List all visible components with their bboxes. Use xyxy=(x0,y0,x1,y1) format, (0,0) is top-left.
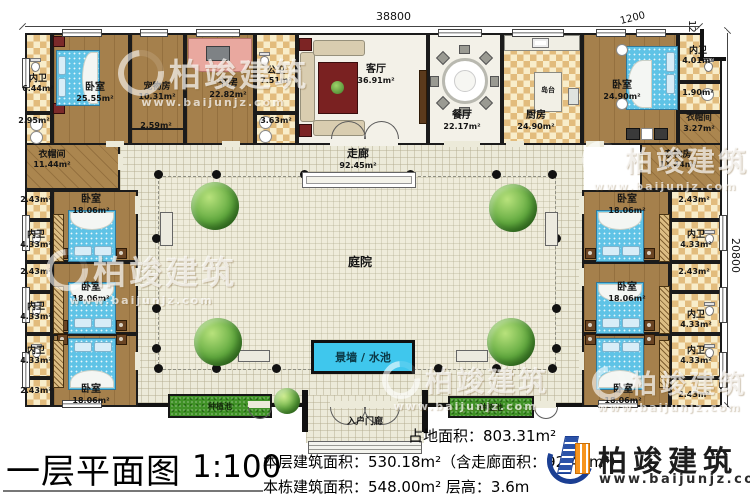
room-label: 内卫4.33m² xyxy=(676,346,716,366)
nightstand xyxy=(585,334,596,345)
dimension-line-right xyxy=(727,33,728,407)
window xyxy=(719,287,727,323)
side-table xyxy=(299,38,312,51)
room-label: 衣帽间11.44m² xyxy=(22,150,82,170)
window xyxy=(140,29,168,37)
nightstand xyxy=(585,248,596,259)
door-opening xyxy=(135,352,140,370)
tree xyxy=(191,182,239,230)
room-label: 2.43m² xyxy=(672,390,716,399)
room-label: 卧室18.06m² xyxy=(66,384,116,405)
room-label: 卧室18.06m² xyxy=(602,282,652,303)
brand-logo-icon xyxy=(546,428,598,492)
pillow xyxy=(74,318,92,328)
window xyxy=(196,29,240,37)
bench xyxy=(545,212,558,246)
room-label: 卧室25.55m² xyxy=(70,82,120,103)
armchair xyxy=(654,128,668,140)
toilet-icon xyxy=(259,52,270,66)
door-opening xyxy=(579,352,584,370)
window xyxy=(636,29,666,37)
stat-floor-height: 层高：3.6m xyxy=(446,478,529,496)
room-label: 书房22.82m² xyxy=(200,78,256,99)
pillow xyxy=(94,246,112,256)
room-label: 2.43m² xyxy=(672,195,716,204)
small-table xyxy=(641,128,653,140)
courtyard-column-dots xyxy=(0,0,9,9)
courtyard-planter xyxy=(302,172,416,188)
title-underline xyxy=(3,490,263,492)
pillow xyxy=(622,342,640,352)
door-opening xyxy=(506,141,524,147)
sink-icon xyxy=(30,131,43,144)
stat-building-area: 本栋建筑面积：548.00m² 层高：3.6m xyxy=(263,476,529,497)
room-label: 厨房24.90m² xyxy=(512,110,560,131)
room-label: 2.43m² xyxy=(14,386,58,395)
chair xyxy=(430,76,439,87)
pillow xyxy=(666,52,675,72)
side-table xyxy=(299,124,312,137)
bench xyxy=(160,212,173,246)
logo-building-orange xyxy=(575,443,590,474)
wardrobe xyxy=(659,340,670,388)
tree xyxy=(489,184,537,232)
toilet-icon xyxy=(30,58,41,72)
chair xyxy=(459,45,470,54)
room-label: 杂物房11.44m² xyxy=(648,150,708,170)
door-arc xyxy=(534,407,558,419)
pillow xyxy=(94,342,112,352)
window xyxy=(719,352,727,388)
tree xyxy=(194,318,242,366)
pillow xyxy=(602,318,620,328)
stat-land-area: 占地面积：803.31m² xyxy=(408,425,556,446)
bench xyxy=(238,350,270,362)
door-opening xyxy=(444,141,480,147)
door-opening xyxy=(118,154,123,170)
room-label: 卧室18.06m² xyxy=(66,194,116,215)
room-label: 内卫4.33m² xyxy=(16,346,56,366)
dimension-top-value: 38800 xyxy=(372,10,415,23)
dimension-corner-h: 1200 xyxy=(619,10,646,27)
pillow xyxy=(602,342,620,352)
room-label: 衣帽间3.27m² xyxy=(676,114,722,133)
room-label: 内卫4.33m² xyxy=(676,230,716,250)
plant xyxy=(331,81,344,94)
double-door-opening xyxy=(330,138,398,146)
window xyxy=(512,29,564,37)
brand-website: www.baijunjz.com xyxy=(599,472,750,487)
nightstand xyxy=(116,334,127,345)
nightstand xyxy=(644,334,655,345)
sofa xyxy=(313,40,365,56)
room-label: 公卫7.51m² xyxy=(254,66,298,86)
room-label: 内卫4.33m² xyxy=(16,230,56,250)
room-label: 卧室18.06m² xyxy=(602,194,652,215)
nightstand xyxy=(116,248,127,259)
nightstand xyxy=(644,320,655,331)
dimension-line-top xyxy=(25,26,700,27)
pillow xyxy=(74,342,92,352)
tree xyxy=(487,318,535,366)
door-opening xyxy=(135,268,140,286)
pillow xyxy=(602,246,620,256)
room-label: 3.63m² xyxy=(252,116,300,125)
room-label: 2.43m² xyxy=(14,195,58,204)
dining-table-center xyxy=(454,70,476,92)
corridor-label: 走廊92.45m² xyxy=(330,148,386,170)
bench xyxy=(456,350,488,362)
room-label: 2.95m² xyxy=(10,116,58,125)
room-label: 1.90m² xyxy=(676,88,720,97)
door-opening xyxy=(586,141,604,147)
window xyxy=(596,29,626,37)
pillow xyxy=(666,74,675,94)
room-label: 卧室24.90m² xyxy=(598,80,646,101)
window xyxy=(719,215,727,251)
kitchen-sink xyxy=(532,38,549,48)
monitor xyxy=(206,46,230,61)
water-feature: 景墙 / 水池 xyxy=(311,340,415,374)
plan-title: 一层平面图 xyxy=(6,444,181,493)
courtyard-label: 庭院 xyxy=(336,256,384,270)
room-label: 客厅36.91m² xyxy=(352,64,400,85)
wardrobe xyxy=(659,286,670,334)
pillow xyxy=(74,246,92,256)
door-opening xyxy=(579,196,584,214)
nightstand xyxy=(644,248,655,259)
window xyxy=(438,29,482,37)
room-label: 内卫6.44m² xyxy=(14,74,62,94)
room-label: 餐厅22.17m² xyxy=(438,110,486,131)
floorplan-canvas: 38800 1200 1200 20800 庭院 走廊92.45m² 景墙 / … xyxy=(0,0,750,504)
door-opening xyxy=(222,141,240,147)
tv-cabinet xyxy=(419,70,427,124)
lamp xyxy=(616,44,628,56)
shrub xyxy=(274,388,300,414)
door-opening xyxy=(638,154,643,170)
room-pet-annex xyxy=(130,128,185,145)
door-opening xyxy=(579,268,584,286)
room-label: 2.43m² xyxy=(14,267,58,276)
pillow xyxy=(622,318,640,328)
sofa xyxy=(300,52,315,122)
nightstand xyxy=(585,320,596,331)
pillow xyxy=(94,318,112,328)
armchair xyxy=(626,128,640,140)
room-label: 2.43m² xyxy=(672,267,716,276)
nightstand xyxy=(116,320,127,331)
appliance xyxy=(568,88,579,105)
sink-icon xyxy=(259,130,272,143)
room-label: 宠物房10.31m² xyxy=(129,82,185,102)
room-label: 内卫4.01m² xyxy=(676,46,720,66)
pillow xyxy=(58,56,66,75)
side-table xyxy=(53,36,65,47)
porch-label: 入户门廊 xyxy=(336,417,394,427)
porch-wall xyxy=(302,390,308,432)
pillow xyxy=(622,246,640,256)
chair xyxy=(490,76,499,87)
room-label: 内卫4.33m² xyxy=(16,302,56,322)
door-opening xyxy=(135,196,140,214)
room-label: 岛台 xyxy=(534,86,562,94)
planting-bed-right: 种植池 xyxy=(448,396,534,418)
room-label: 2.59m² xyxy=(130,121,182,130)
door-opening xyxy=(106,141,124,147)
room-label: 卧室18.06m² xyxy=(66,282,116,303)
wardrobe xyxy=(659,214,670,262)
room-label: 内卫4.33m² xyxy=(676,310,716,330)
dimension-right-value: 20800 xyxy=(729,238,742,273)
window xyxy=(62,29,102,37)
room-label: 卧室18.06m² xyxy=(598,384,648,405)
